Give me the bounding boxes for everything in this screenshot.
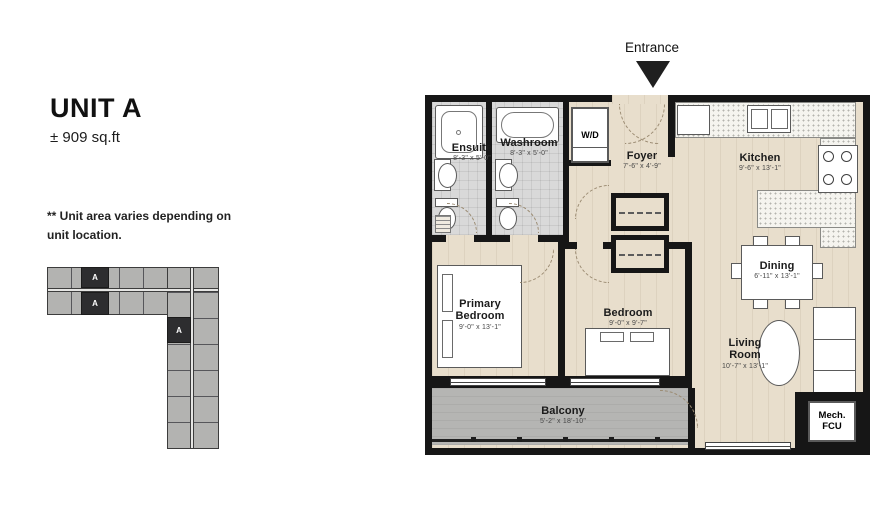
railing-post <box>517 437 522 442</box>
mech-fcu-label: Mech. FCU <box>815 411 849 433</box>
kitchen-sink <box>747 105 791 133</box>
keyplan-corridor-vertical <box>190 267 194 449</box>
keyplan-unit-marker: A <box>176 326 182 335</box>
sink-bowl <box>751 109 768 129</box>
dining-table <box>741 245 813 300</box>
wall <box>538 235 569 242</box>
keyplan: A A A <box>45 263 225 453</box>
wall <box>486 102 492 235</box>
closet-rail <box>619 254 661 256</box>
floorplan-page: UNIT A ± 909 sq.ft ** Unit area varies d… <box>0 0 896 512</box>
keyplan-unit-marker: A <box>92 273 98 282</box>
bed <box>585 328 670 376</box>
unit-note: ** Unit area varies depending on unit lo… <box>47 207 231 244</box>
keyplan-unit-a-top: A <box>81 267 109 288</box>
bedroom-slider-window <box>570 378 660 386</box>
bathtub-drain <box>456 130 461 135</box>
pillow <box>442 274 453 312</box>
wall <box>565 242 577 249</box>
washer-dryer-divider <box>573 147 607 148</box>
floorplan: W/D <box>425 95 870 455</box>
stove-burner <box>823 174 834 185</box>
washer-dryer: W/D <box>571 107 609 163</box>
hall-closet <box>611 235 669 273</box>
primary-bed <box>437 265 522 368</box>
pillow <box>630 332 654 342</box>
bathtub-basin <box>501 112 554 138</box>
unit-title: UNIT A <box>50 93 142 124</box>
bathtub <box>435 105 483 159</box>
railing-post <box>609 437 614 442</box>
sink-basin <box>499 163 518 188</box>
sofa <box>813 307 856 402</box>
keyplan-unit-marker: A <box>92 299 98 308</box>
wall <box>563 102 569 235</box>
wall <box>668 102 675 157</box>
stove-burner <box>841 151 852 162</box>
washer-dryer-label: W/D <box>581 130 599 140</box>
unit-note-line1: ** Unit area varies depending on <box>47 207 231 226</box>
fridge <box>677 105 710 135</box>
window-mullion <box>706 446 790 447</box>
dining-chair <box>812 263 823 279</box>
entrance-opening <box>612 95 668 104</box>
stove <box>818 145 858 193</box>
hall-closet <box>611 193 669 231</box>
unit-note-line2: unit location. <box>47 226 231 245</box>
wall <box>558 242 565 378</box>
sofa-cushion-divider <box>814 339 855 340</box>
unit-area: ± 909 sq.ft <box>50 129 120 146</box>
wall <box>474 235 510 242</box>
keyplan-unit-a-bottom: A <box>81 292 109 315</box>
pillow <box>600 332 624 342</box>
pillow <box>442 320 453 358</box>
railing-post <box>471 437 476 442</box>
closet-rail <box>619 212 661 214</box>
window-mullion <box>451 382 545 383</box>
wall <box>432 235 446 242</box>
mech-fcu-room: Mech. FCU <box>808 401 856 442</box>
stove-burner <box>841 174 852 185</box>
coffee-table <box>758 320 800 386</box>
entrance-label: Entrance <box>602 40 702 55</box>
living-room-window <box>705 442 791 450</box>
sink-bowl <box>771 109 788 129</box>
window-mullion <box>571 382 659 383</box>
sofa-cushion-divider <box>814 370 855 371</box>
stove-burner <box>823 151 834 162</box>
bathtub <box>496 107 559 143</box>
wall <box>685 242 692 378</box>
sink-basin <box>438 163 457 188</box>
railing-post <box>655 437 660 442</box>
keyplan-unit-a-wing: A <box>167 317 191 343</box>
primary-bedroom-slider-window <box>450 378 546 386</box>
kitchen-island <box>757 190 856 228</box>
railing-post <box>563 437 568 442</box>
entrance-arrow-icon <box>636 61 670 88</box>
